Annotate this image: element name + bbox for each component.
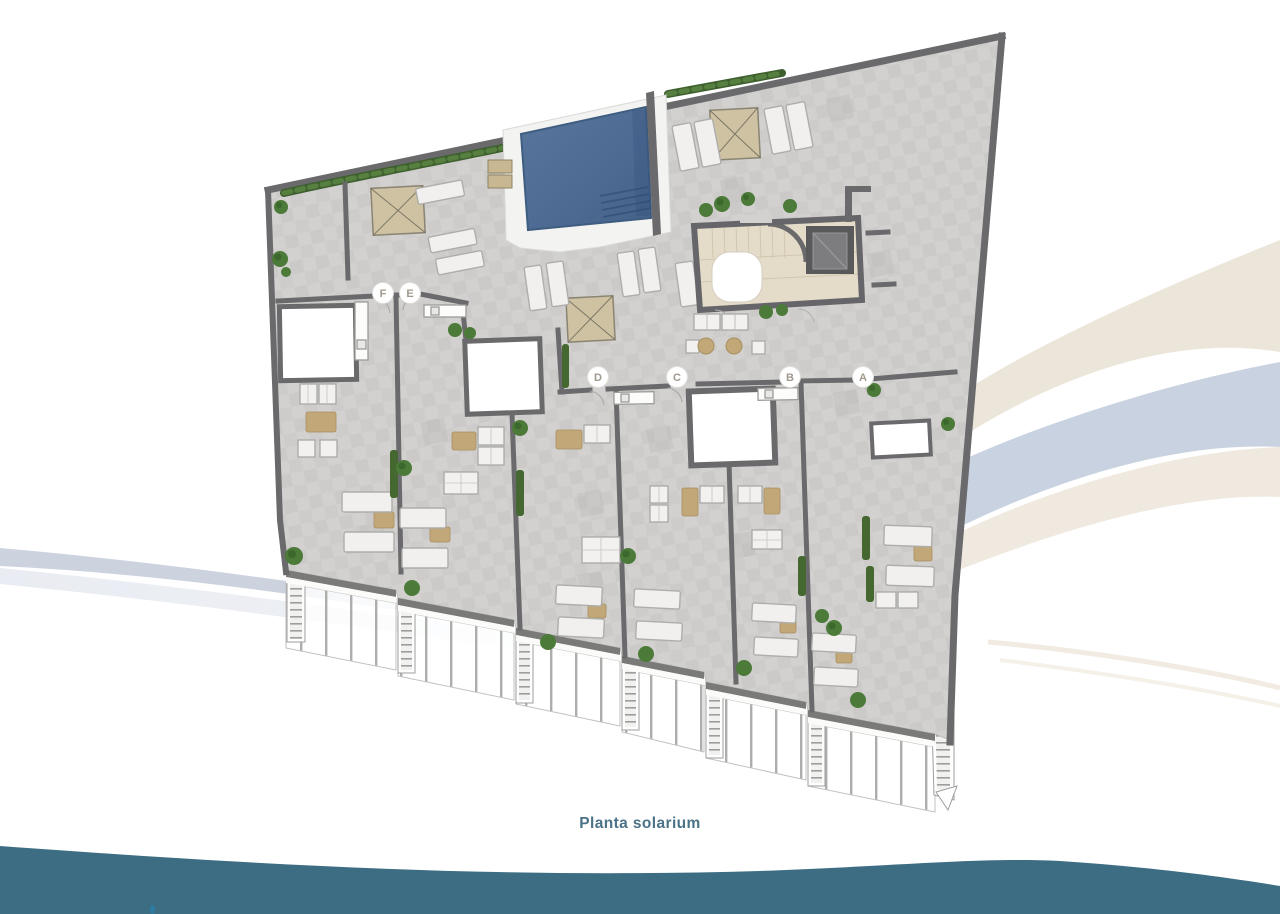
unit-label-A: A <box>859 372 867 384</box>
void-unit-e <box>465 339 543 415</box>
page: FEDCBA Planta solarium <box>0 0 1280 914</box>
cropped-logo-dot <box>150 905 155 914</box>
void-unit-f <box>279 305 356 380</box>
elevator <box>806 226 854 274</box>
unit-label-B: B <box>786 372 794 384</box>
unit-label-C: C <box>673 372 681 384</box>
core-skylight <box>712 252 762 302</box>
solarium-plan-image: FEDCBA <box>0 0 1280 914</box>
unit-label-E: E <box>406 288 413 300</box>
right-faint-streak-2 <box>1000 660 1280 706</box>
pergola-center <box>566 296 615 342</box>
unit-label-D: D <box>594 372 602 384</box>
plan-caption: Planta solarium <box>0 815 1280 833</box>
core-door-gap <box>740 215 772 223</box>
bottom-wave-band <box>0 846 1280 914</box>
void-unit-a <box>871 421 931 458</box>
unit-label-F: F <box>380 288 387 300</box>
pool-area <box>488 91 671 252</box>
